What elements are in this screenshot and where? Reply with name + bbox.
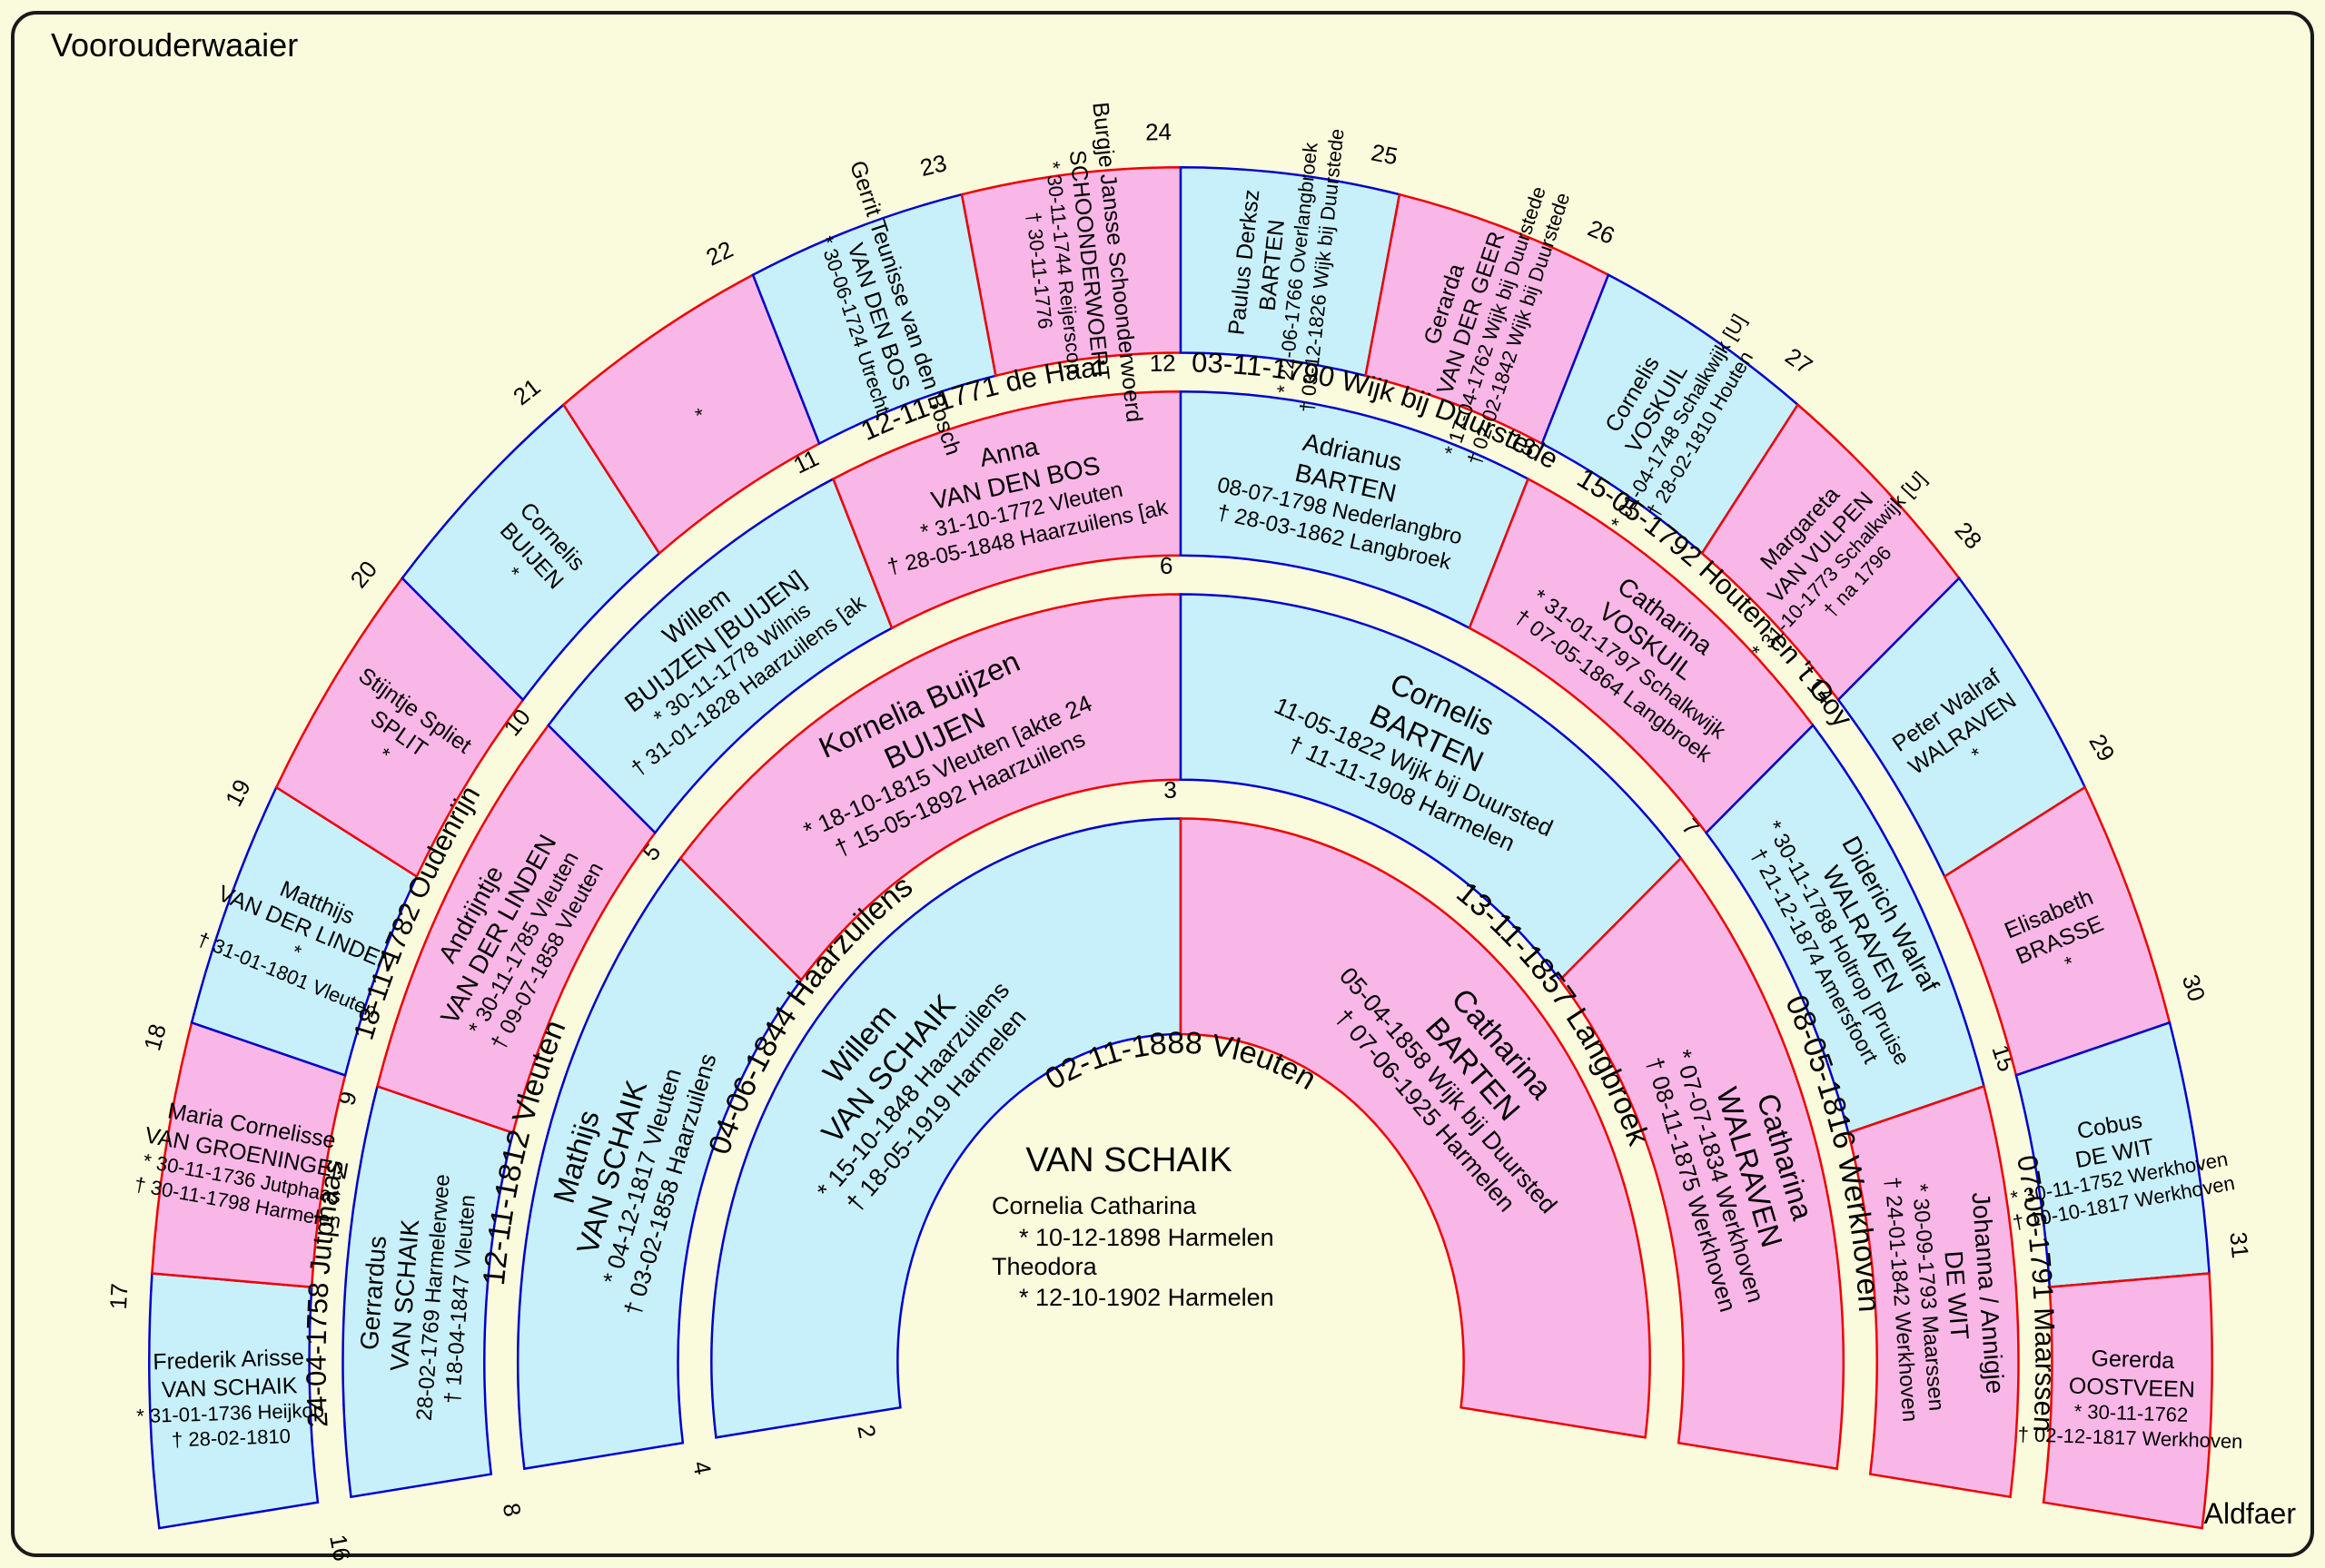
sector-number-16: 16 (324, 1533, 356, 1563)
center-child-line: Theodora (992, 1253, 1098, 1280)
center-child-line: * 12-10-1902 Harmelen (1019, 1284, 1274, 1311)
sector-number-31: 31 (2224, 1230, 2254, 1259)
fan-chart: Voorouderwaaier WillemVAN SCHAIK* 15-10-… (0, 0, 2325, 1568)
page-title: Voorouderwaaier (51, 26, 298, 64)
sector-number-17: 17 (104, 1283, 133, 1310)
center-block: VAN SCHAIK Cornelia Catharina * 10-12-18… (992, 1141, 1274, 1311)
sector-number-25: 25 (1369, 138, 1400, 170)
aldfaer-logo: Aldfaer (2204, 1497, 2297, 1530)
sector-number-24: 24 (1145, 118, 1172, 146)
center-surname: VAN SCHAIK (1025, 1141, 1232, 1179)
center-child-line: Cornelia Catharina (992, 1192, 1197, 1219)
page: Voorouderwaaier WillemVAN SCHAIK* 15-10-… (0, 0, 2325, 1568)
center-child-line: * 10-12-1898 Harmelen (1019, 1224, 1274, 1251)
